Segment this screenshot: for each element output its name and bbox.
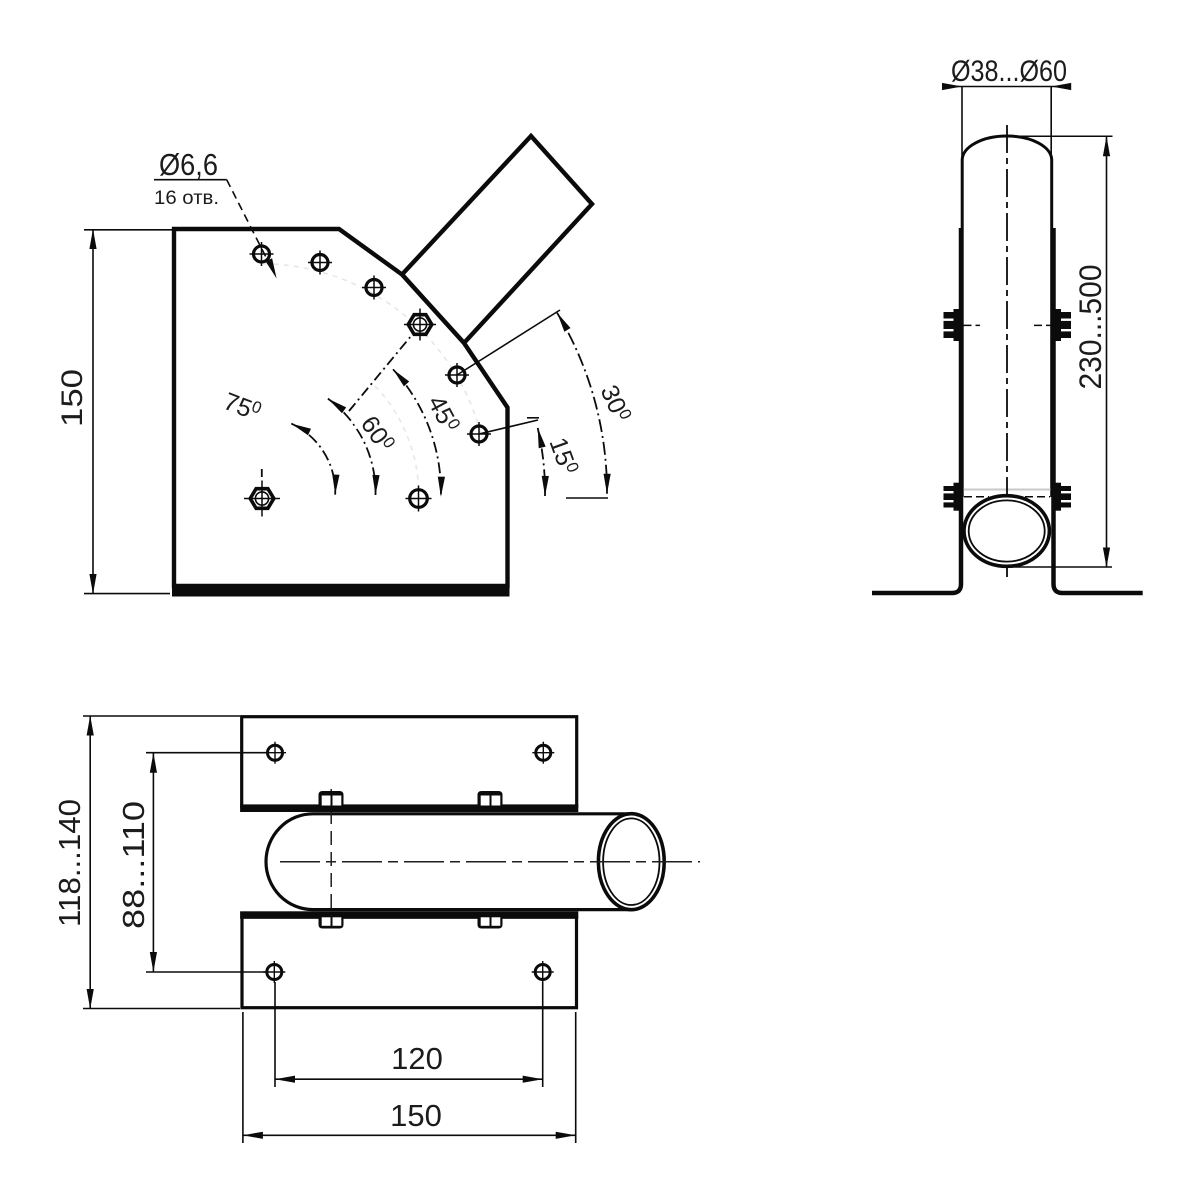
svg-text:120: 120 xyxy=(391,1041,443,1076)
svg-text:230...500: 230...500 xyxy=(1072,265,1108,390)
svg-text:88...110: 88...110 xyxy=(116,801,151,929)
svg-text:118...140: 118...140 xyxy=(52,799,87,927)
svg-text:Ø6,6: Ø6,6 xyxy=(159,147,218,182)
svg-text:150: 150 xyxy=(390,1098,442,1133)
svg-text:Ø38...Ø60: Ø38...Ø60 xyxy=(951,55,1067,88)
svg-text:150: 150 xyxy=(56,369,89,427)
svg-text:16 отв.: 16 отв. xyxy=(154,187,219,209)
